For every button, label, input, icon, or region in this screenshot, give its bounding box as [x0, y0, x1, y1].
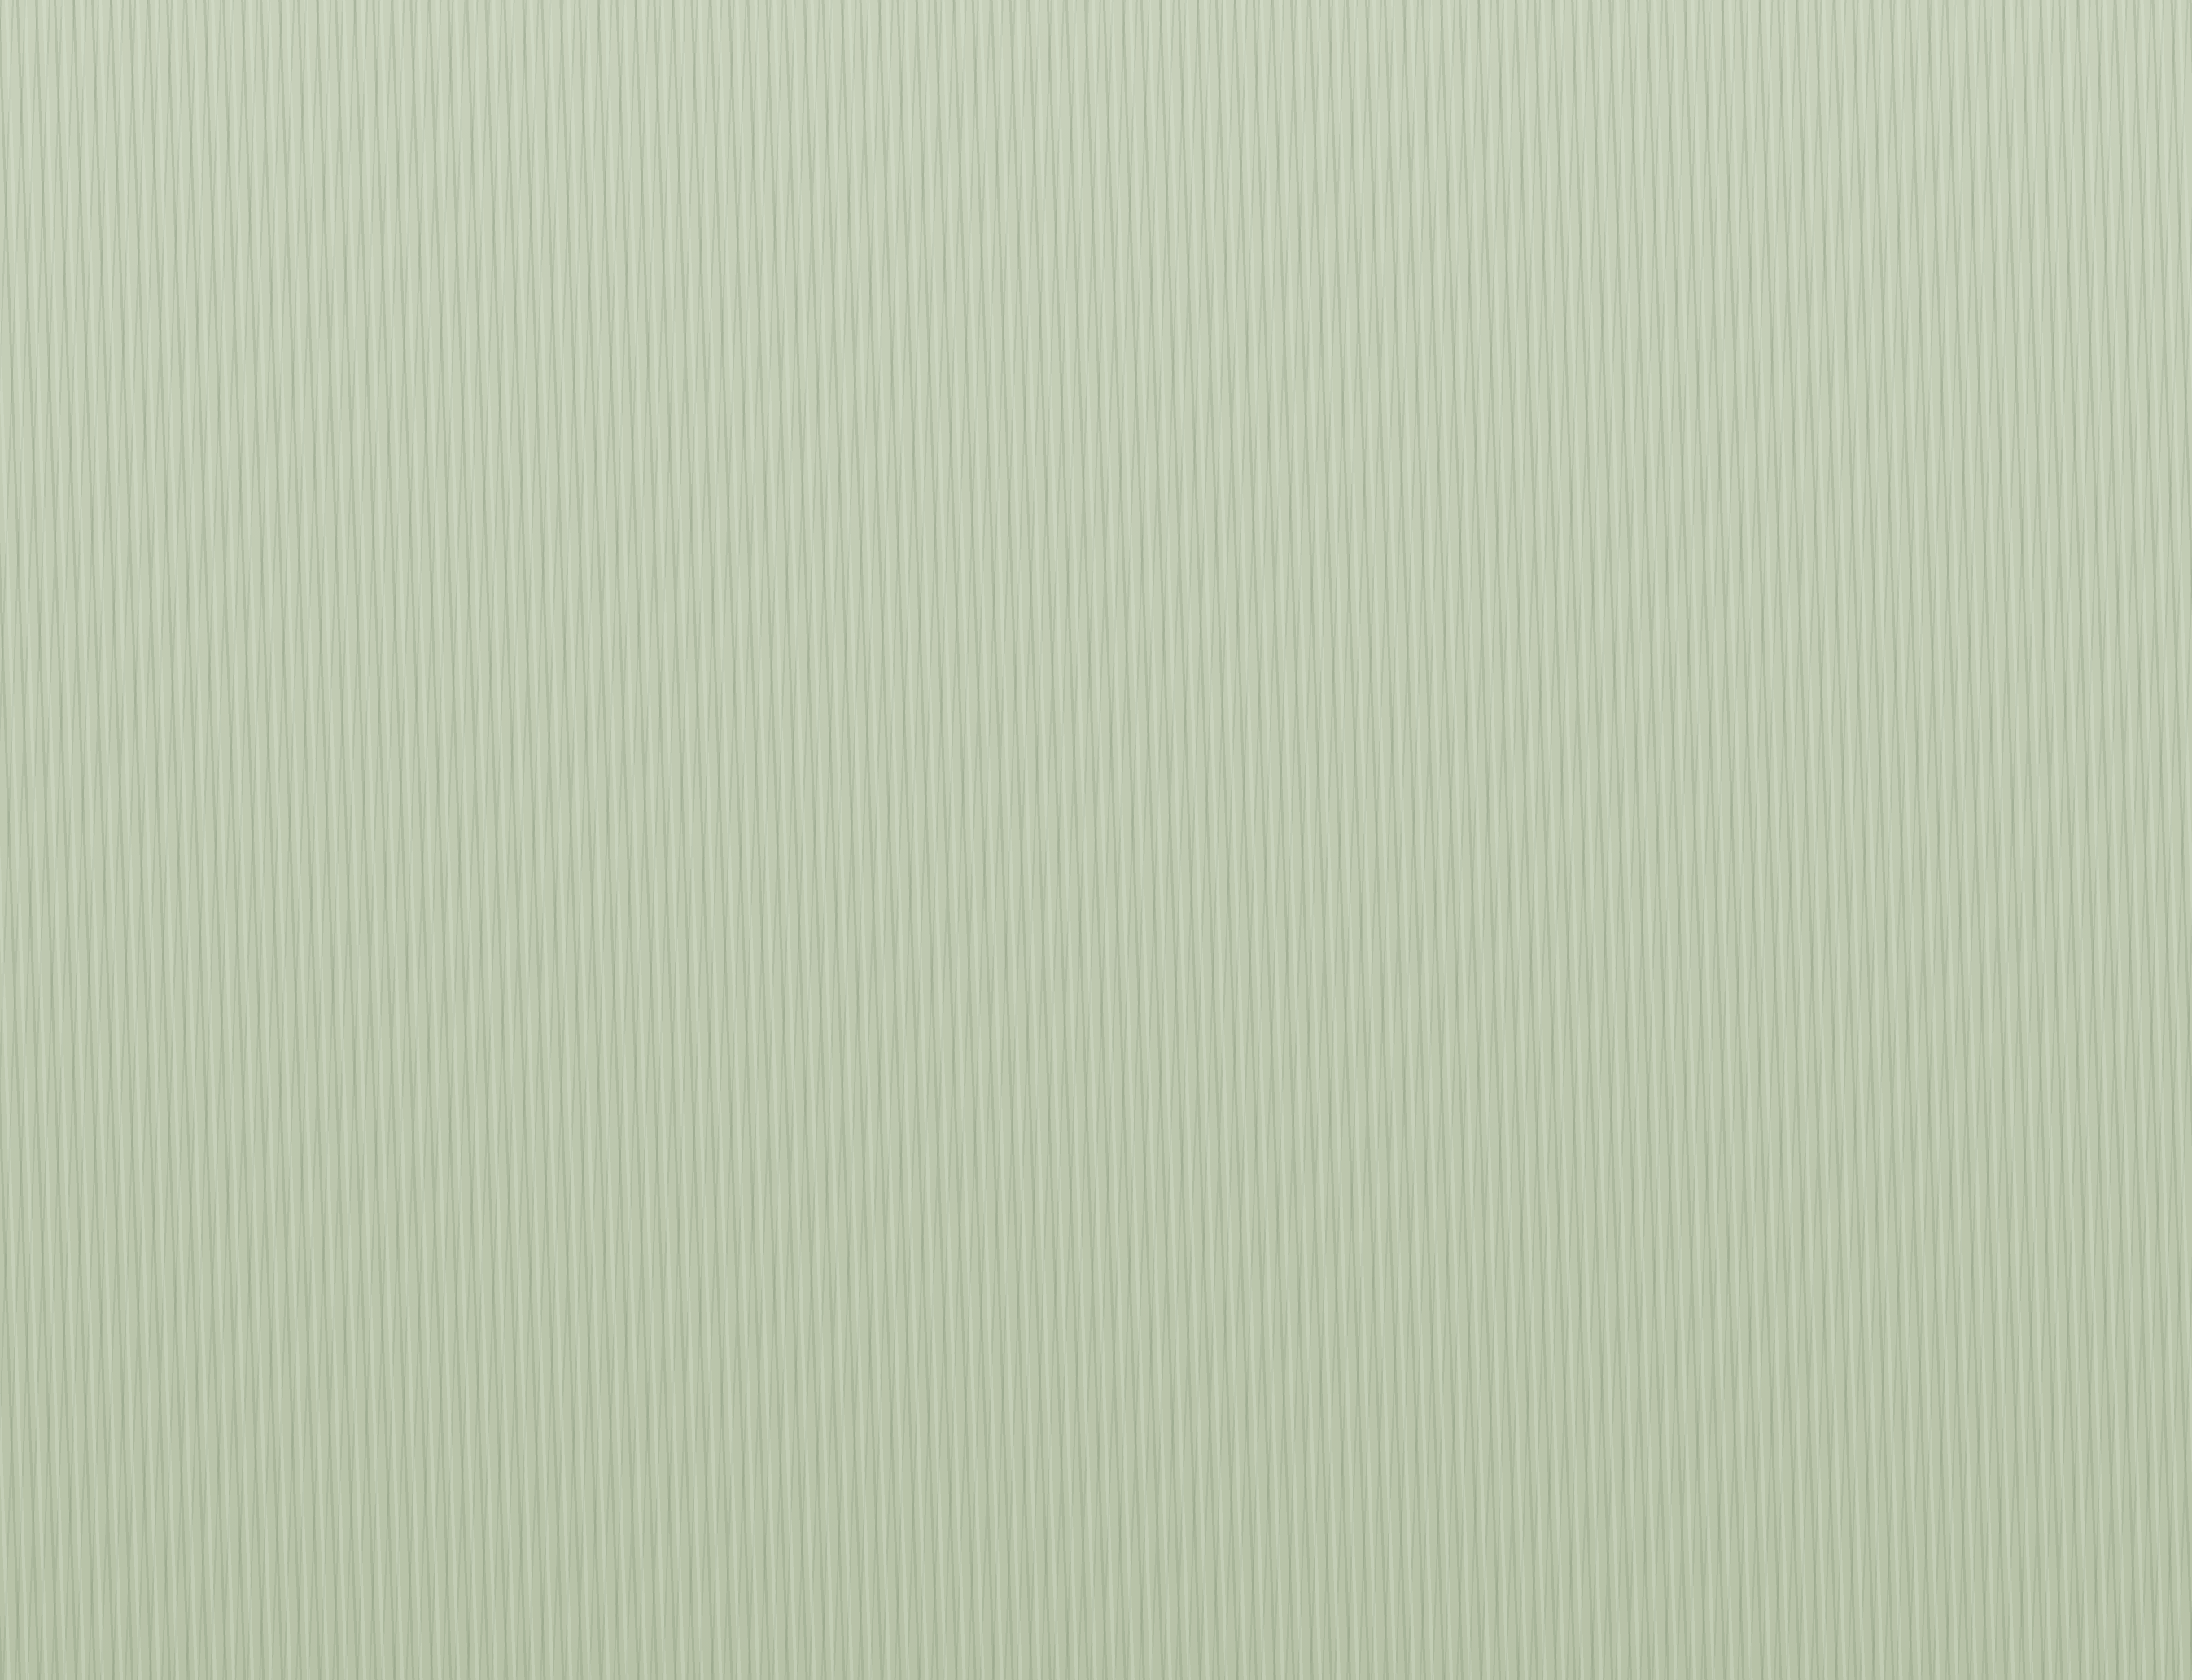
- cadastral-map-drawing: [0, 0, 2192, 1680]
- scanned-cadastral-map-page: { "palette":{"paper":"#e4d2a0","backing"…: [0, 0, 2192, 1680]
- map-canvas: [0, 0, 2192, 1680]
